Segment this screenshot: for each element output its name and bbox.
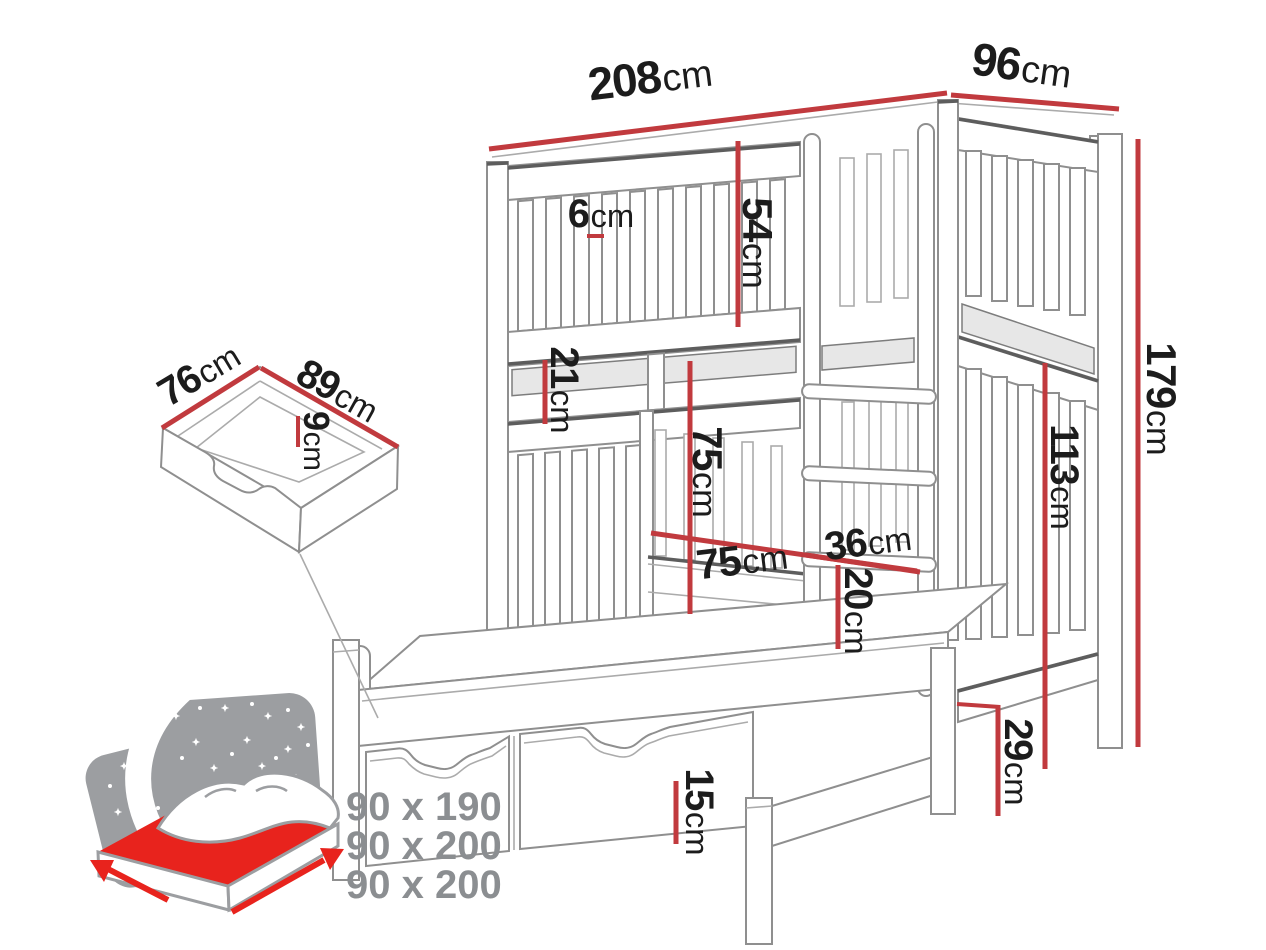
mattress-size-item: 90 x 200 bbox=[346, 866, 502, 905]
dim-value: 21 bbox=[542, 346, 586, 388]
dim-label-drawer-height: 9cm bbox=[298, 411, 334, 471]
dim-unit: cm bbox=[591, 197, 635, 234]
dim-unit: cm bbox=[685, 472, 723, 518]
dim-value: 36 bbox=[822, 520, 869, 569]
dim-value: 54 bbox=[734, 197, 781, 241]
dim-value: 179 bbox=[1138, 342, 1185, 408]
dim-unit: cm bbox=[735, 243, 773, 289]
dim-label-top-guard-height: 54cm bbox=[736, 197, 778, 289]
dim-label-lower-section-height: 113cm bbox=[1044, 424, 1084, 530]
dim-unit: cm bbox=[1019, 47, 1075, 96]
mattress-size-item: 90 x 200 bbox=[346, 827, 502, 866]
mattress-size-item: 90 x 190 bbox=[346, 788, 502, 827]
dim-value: 208 bbox=[585, 50, 663, 110]
dim-label-total-height: 179cm bbox=[1140, 342, 1182, 455]
dim-label-bunk-gap: 21cm bbox=[544, 346, 584, 433]
dim-value: 29 bbox=[996, 718, 1040, 760]
dim-value: 96 bbox=[969, 32, 1024, 90]
dim-label-slat-gap: 6cm bbox=[568, 194, 634, 234]
dim-unit: cm bbox=[660, 52, 715, 100]
dim-label-middle-clearance: 75cm bbox=[686, 426, 728, 518]
dim-value: 6 bbox=[568, 192, 589, 236]
dim-unit: cm bbox=[866, 520, 914, 562]
dim-label-trundle-front-height: 15cm bbox=[679, 768, 719, 855]
mattress-sizes-list: 90 x 190 90 x 200 90 x 200 bbox=[346, 788, 502, 905]
dim-unit: cm bbox=[1044, 486, 1081, 530]
dim-unit: cm bbox=[998, 762, 1035, 806]
dim-value: 9 bbox=[296, 411, 337, 430]
bed-right-end-panel bbox=[958, 118, 1122, 748]
dim-value: 75 bbox=[694, 536, 743, 588]
dim-unit: cm bbox=[1139, 410, 1177, 456]
dim-value: 75 bbox=[684, 426, 731, 470]
bed-front-right-post bbox=[938, 100, 958, 640]
dim-label-rung-spacing: 20cm bbox=[838, 567, 878, 654]
dim-unit: cm bbox=[679, 812, 716, 856]
dim-unit: cm bbox=[544, 390, 581, 434]
dim-value: 20 bbox=[836, 567, 880, 609]
dim-value: 113 bbox=[1042, 424, 1086, 484]
diagram-canvas: 208cm 96cm 6cm 54cm 21cm 75cm 75cm 36cm … bbox=[0, 0, 1266, 950]
dim-unit: cm bbox=[297, 432, 330, 471]
mattress-icon bbox=[80, 686, 344, 912]
dim-value: 15 bbox=[677, 768, 721, 810]
dim-label-underbed-clearance: 29cm bbox=[998, 718, 1038, 805]
dim-unit: cm bbox=[838, 611, 875, 655]
dim-unit: cm bbox=[740, 539, 790, 582]
